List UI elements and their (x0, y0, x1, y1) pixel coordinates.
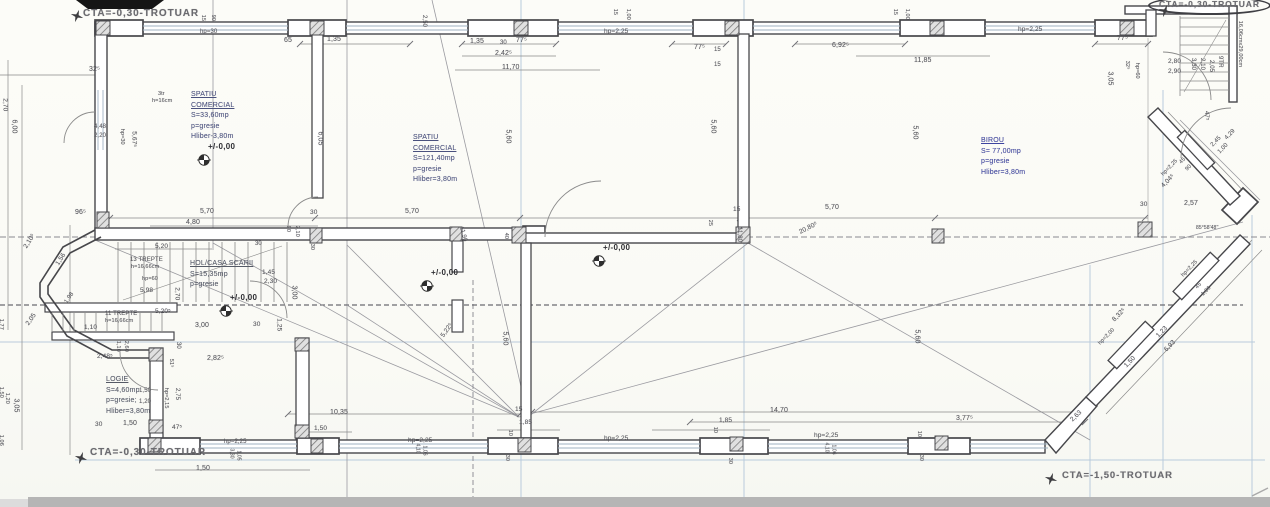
scan-artifacts (0, 0, 1270, 507)
plan-drawing (0, 0, 1270, 507)
dimension-lines (0, 38, 1262, 470)
floor-plan-canvas: CTA=-0,30-TROTUARCTA=-0,30-TROTUARCTA=-0… (0, 0, 1270, 507)
door-arcs (64, 52, 1231, 390)
stair-treads (52, 16, 1229, 331)
axis-lines (0, 0, 1270, 507)
walls (45, 6, 1258, 454)
